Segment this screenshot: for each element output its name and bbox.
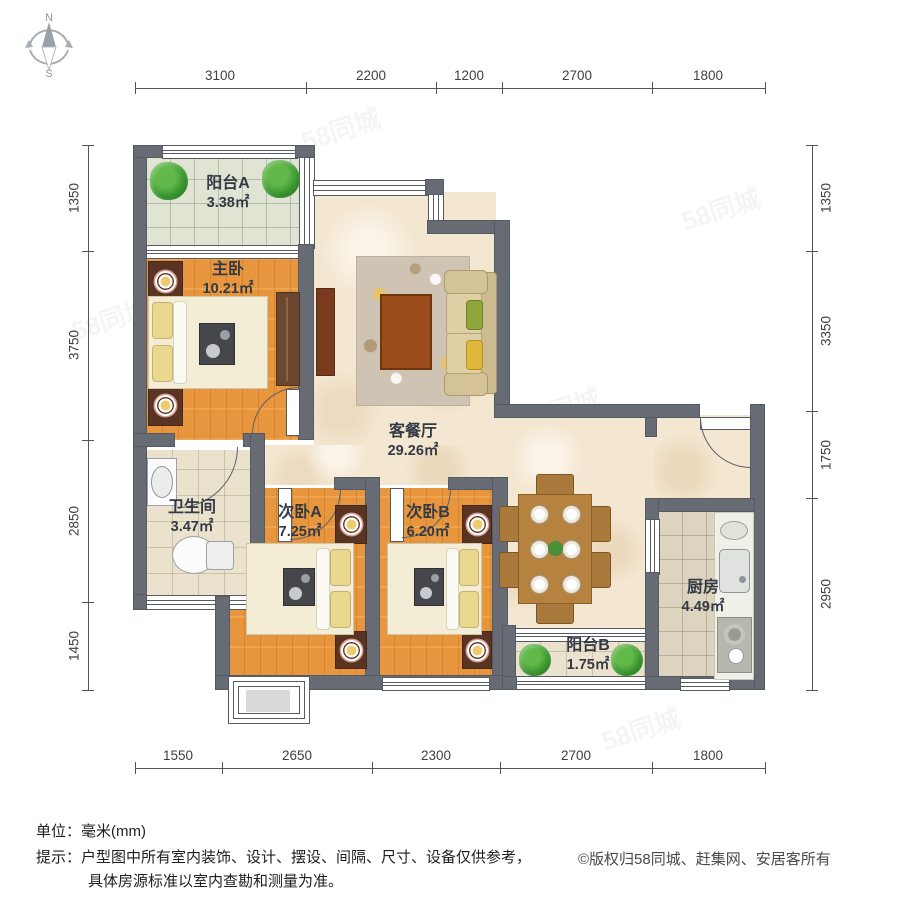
dining-table [518, 494, 592, 604]
room-label-master: 主卧 10.21㎡ [203, 260, 254, 298]
room-name: 主卧 [203, 260, 254, 280]
dim-tick [82, 602, 94, 603]
room-area: 3.38㎡ [206, 194, 250, 212]
watermark: 58同城 [596, 698, 684, 758]
room-label-bedroom-b: 次卧B 6.20㎡ [406, 503, 450, 541]
bedroom-b-bed [387, 543, 482, 635]
dim-tick [502, 82, 503, 94]
toilet-tank [206, 541, 234, 570]
pillow [152, 302, 173, 339]
dim-tick [222, 762, 223, 774]
wall-post [425, 179, 444, 195]
footer-unit-line: 单位：毫米(mm) [36, 820, 146, 841]
dim-line-right [812, 145, 813, 690]
dim-line-left [88, 145, 89, 690]
room-area: 6.20㎡ [406, 523, 450, 541]
plate [530, 575, 549, 594]
wall-kitchen-top [645, 498, 755, 512]
plant-icon [150, 162, 188, 200]
tray-dish [220, 330, 230, 340]
room-label-bathroom: 卫生间 3.47㎡ [168, 498, 216, 536]
wall-kitchen-left [645, 572, 659, 690]
tip-text-1: 户型图中所有室内装饰、设计、摆设、间隔、尺寸、设备仅供参考， [81, 849, 531, 866]
bedroom-b-nightstand-lamp [462, 505, 492, 544]
dim-label-bottom: 2300 [421, 748, 451, 763]
coffee-table [380, 294, 432, 370]
room-label-balcony-b: 阳台B 1.75㎡ [566, 636, 610, 674]
dim-label-top: 1200 [454, 68, 484, 83]
floorplan-canvas: N S 58同城 58同城 58同城 58同城 58同城 58同城 [0, 0, 900, 900]
bathroom-window [146, 595, 254, 610]
dim-label-right: 1350 [819, 183, 834, 213]
dim-tick [806, 251, 818, 252]
dim-label-left: 1350 [67, 183, 82, 213]
bedroom-b-window [382, 677, 490, 691]
footer-tip-line2: 具体房源标准以室内查勘和测量为准。 [88, 870, 343, 891]
room-area: 4.49㎡ [682, 598, 725, 616]
room-name: 次卧B [406, 503, 450, 523]
dim-label-bottom: 2650 [282, 748, 312, 763]
lamp-icon [157, 397, 174, 414]
tray-dish [431, 574, 439, 582]
footer-tip-line1: 提示：户型图中所有室内装饰、设计、摆设、间隔、尺寸、设备仅供参考， [36, 846, 531, 867]
dim-tick [652, 762, 653, 774]
dim-tick [765, 82, 766, 94]
compass-north-label: N [45, 12, 53, 24]
table-plant [548, 541, 563, 556]
living-top-window [313, 180, 428, 196]
copyright-text: ©版权归58同城、赶集网、安居客所有 [578, 848, 831, 869]
master-wardrobe [276, 292, 300, 386]
sofa-pillow-green [466, 300, 483, 330]
dim-label-top: 3100 [205, 68, 235, 83]
wall-balcony-a-post [133, 145, 163, 158]
bed-runner [316, 548, 330, 630]
room-name: 阳台B [566, 636, 610, 656]
dim-tick [82, 690, 94, 691]
lamp-icon [157, 273, 174, 290]
pillow [330, 591, 351, 628]
wall-kitchen-left [645, 498, 659, 520]
bedroom-a-bed [246, 543, 354, 635]
dim-line-bottom [135, 768, 765, 769]
wall-top-right [494, 404, 700, 418]
dim-tick [135, 82, 136, 94]
dim-tick [500, 762, 501, 774]
lamp-icon [469, 642, 486, 659]
pillow [459, 549, 479, 586]
dim-tick [82, 251, 94, 252]
wall-bathroom-corner [133, 594, 147, 610]
room-name: 厨房 [682, 578, 725, 598]
tray-dish [301, 574, 310, 583]
dim-label-right: 1750 [819, 440, 834, 470]
dim-tick [765, 762, 766, 774]
tip-label: 提示： [36, 849, 81, 866]
compass-needle-north [42, 22, 56, 47]
wall-master-right [298, 244, 314, 440]
plant-icon [519, 644, 551, 676]
dim-label-left: 1450 [67, 631, 82, 661]
tray-dish [289, 587, 302, 600]
room-label-kitchen: 厨房 4.49㎡ [682, 578, 725, 616]
dim-label-left: 2850 [67, 506, 82, 536]
dim-label-top: 2200 [356, 68, 386, 83]
dim-label-top: 1800 [693, 68, 723, 83]
dim-tick [806, 145, 818, 146]
dim-tick [82, 440, 94, 441]
lamp-icon [469, 516, 486, 533]
plate [562, 575, 581, 594]
bed-runner [173, 301, 187, 384]
kitchen-basin-small [720, 521, 748, 540]
master-balcony-slider [146, 245, 302, 259]
dim-label-bottom: 2700 [561, 748, 591, 763]
room-area: 1.75㎡ [566, 656, 610, 674]
balcony-b-window [516, 676, 648, 690]
master-nightstand-lamp [148, 385, 183, 426]
kitchen-stove [717, 617, 752, 673]
wall-entry-stub [645, 417, 657, 437]
master-bed [148, 296, 268, 389]
room-label-living: 客餐厅 29.26㎡ [388, 422, 439, 460]
dim-label-bottom: 1800 [693, 748, 723, 763]
dim-tick [652, 82, 653, 94]
unit-label: 单位： [36, 823, 81, 840]
room-area: 3.47㎡ [168, 518, 216, 536]
bedroom-b-nightstand-lamp [462, 631, 492, 669]
bed-tray [199, 323, 235, 365]
compass: N S [18, 10, 80, 78]
bed-runner [446, 548, 459, 630]
bed-tray [414, 568, 444, 606]
compass-needle-south [42, 47, 56, 70]
dim-tick [306, 82, 307, 94]
dim-line-top [135, 88, 765, 89]
dim-label-right: 2950 [819, 579, 834, 609]
floorplan-page: { "compass": { "north": "N", "south": "S… [0, 0, 900, 900]
tip-text-2: 具体房源标准以室内查勘和测量为准。 [88, 873, 343, 890]
lamp-icon [343, 516, 360, 533]
bedroom-a-nightstand-lamp [335, 631, 367, 669]
kitchen-door-slider [645, 519, 660, 575]
room-name: 次卧A [278, 503, 322, 523]
bay-window-core [246, 690, 290, 712]
wall-bedroom-divider [365, 477, 380, 690]
bed-tray [283, 568, 315, 606]
wardrobe-rod [286, 297, 288, 381]
sink-bowl [151, 466, 173, 498]
dim-label-bottom: 1550 [163, 748, 193, 763]
room-area: 7.25㎡ [278, 523, 322, 541]
bedroom-a-bay-window [228, 676, 310, 724]
room-name: 卫生间 [168, 498, 216, 518]
sofa-armrest [444, 270, 488, 294]
stove-burner [724, 624, 745, 645]
plant-icon [611, 644, 643, 676]
dim-tick [135, 762, 136, 774]
room-area: 29.26㎡ [388, 442, 439, 460]
pillow [152, 345, 173, 382]
room-area: 10.21㎡ [203, 280, 254, 298]
wall-master-bottom [133, 433, 175, 447]
dim-label-left: 3750 [67, 330, 82, 360]
wall-left-outer [133, 145, 147, 610]
room-name: 阳台A [206, 174, 250, 194]
watermark: 58同城 [676, 178, 764, 238]
lamp-icon [343, 642, 360, 659]
dim-tick [436, 82, 437, 94]
sofa-pillow-yellow [466, 340, 483, 370]
sofa-armrest [444, 372, 488, 396]
plate [530, 540, 549, 559]
dim-label-top: 2700 [562, 68, 592, 83]
tv-cabinet [316, 288, 335, 376]
stove-burner [728, 648, 744, 664]
plate [562, 505, 581, 524]
dim-label-right: 3350 [819, 316, 834, 346]
pillow [330, 549, 351, 586]
pillow [459, 591, 479, 628]
dim-tick [806, 690, 818, 691]
dim-tick [806, 411, 818, 412]
plate [562, 540, 581, 559]
room-name: 客餐厅 [388, 422, 439, 442]
room-label-balcony-a: 阳台A 3.38㎡ [206, 174, 250, 212]
dim-tick [372, 762, 373, 774]
bedroom-a-nightstand-lamp [335, 505, 367, 544]
plant-icon [262, 160, 300, 198]
tray-dish [420, 587, 432, 599]
balcony-a-right-window [299, 157, 315, 249]
tray-dish [206, 344, 220, 358]
balcony-a-top-window [162, 145, 298, 159]
room-label-bedroom-a: 次卧A 7.25㎡ [278, 503, 322, 541]
sofa [442, 270, 496, 394]
compass-south-label: S [45, 68, 52, 78]
unit-value: 毫米(mm) [81, 823, 146, 840]
sink-drain [739, 576, 746, 583]
plate [530, 505, 549, 524]
dim-tick [806, 498, 818, 499]
dim-tick [82, 145, 94, 146]
